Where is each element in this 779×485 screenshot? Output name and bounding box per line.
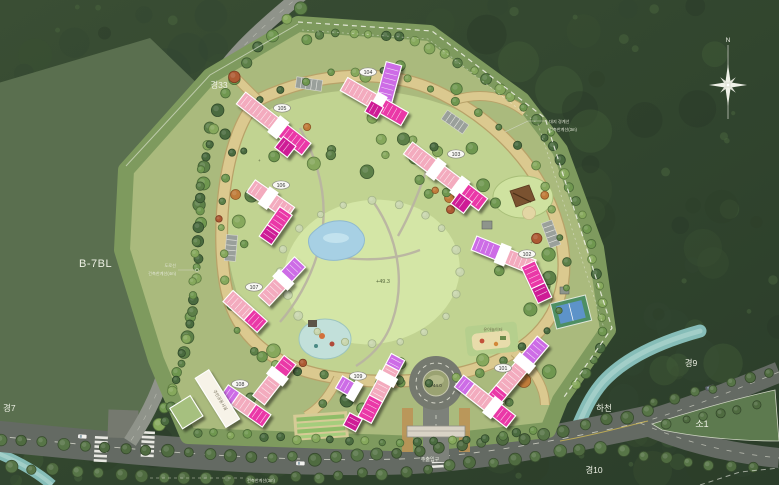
svg-text:106: 106 [277,183,286,189]
svg-text:104: 104 [364,70,373,76]
garden-plots [293,411,349,441]
island-label-so1: 소1 [695,419,708,429]
parcel-label-b7bl: B-7BL [79,258,112,270]
building-label-102: 102 [519,250,536,258]
building-label-105: 105 [274,104,291,112]
annotation-limit-4m: 건축한계선(4m) [148,270,176,277]
annotation-site-boundary: 대지 경계선 [549,118,570,125]
svg-text:102: 102 [523,252,532,258]
road-label-gyeong33: 경33 [210,80,228,90]
elevation-park: +49.3 [376,279,390,285]
svg-text:108: 108 [236,382,245,388]
entrance-gate [407,426,465,437]
main-entrance-label: 주출입구 [421,456,440,463]
svg-text:107: 107 [250,285,259,291]
building-label-109: 109 [350,372,367,380]
svg-text:105: 105 [278,106,287,112]
road-label-gyeong10: 경10 [585,465,603,475]
elevation-mark-3: + [530,240,533,245]
elevation-roundabout: +44.0 [430,383,442,388]
pond-highlight [323,233,349,243]
building-label-108: 108 [232,380,249,388]
svg-text:101: 101 [499,366,508,372]
elevation-mark-2: + [402,122,405,127]
site-plan-canvas: 101102103104105106107108109 경33 B-7BL 경7… [0,0,779,485]
building-label-107: 107 [246,283,263,291]
site-plan: 101102103104105106107108109 경33 B-7BL 경7… [0,0,779,485]
stream-label: 하천 [596,403,612,413]
annotation-road-line: 도로선 [164,262,176,268]
building-label-101: 101 [495,364,512,372]
parking-lot [224,235,237,262]
annotation-limit-3m-top: 건축한계선(3m) [549,126,577,133]
compass-north-label: N [726,37,731,44]
building-label-106: 106 [273,181,290,189]
building-label-104: 104 [360,68,377,76]
road-label-gyeong9: 경9 [685,358,698,368]
toddler-playground-label: 유아놀이터 [483,326,502,333]
svg-text:109: 109 [354,374,363,380]
building-label-103: 103 [448,150,465,158]
road-label-gyeong7: 경7 [3,403,16,413]
elevation-mark-1: + [258,158,261,163]
annotation-limit-3m-bottom: 건축한계선(3m) [247,477,275,484]
svg-text:103: 103 [452,152,461,158]
